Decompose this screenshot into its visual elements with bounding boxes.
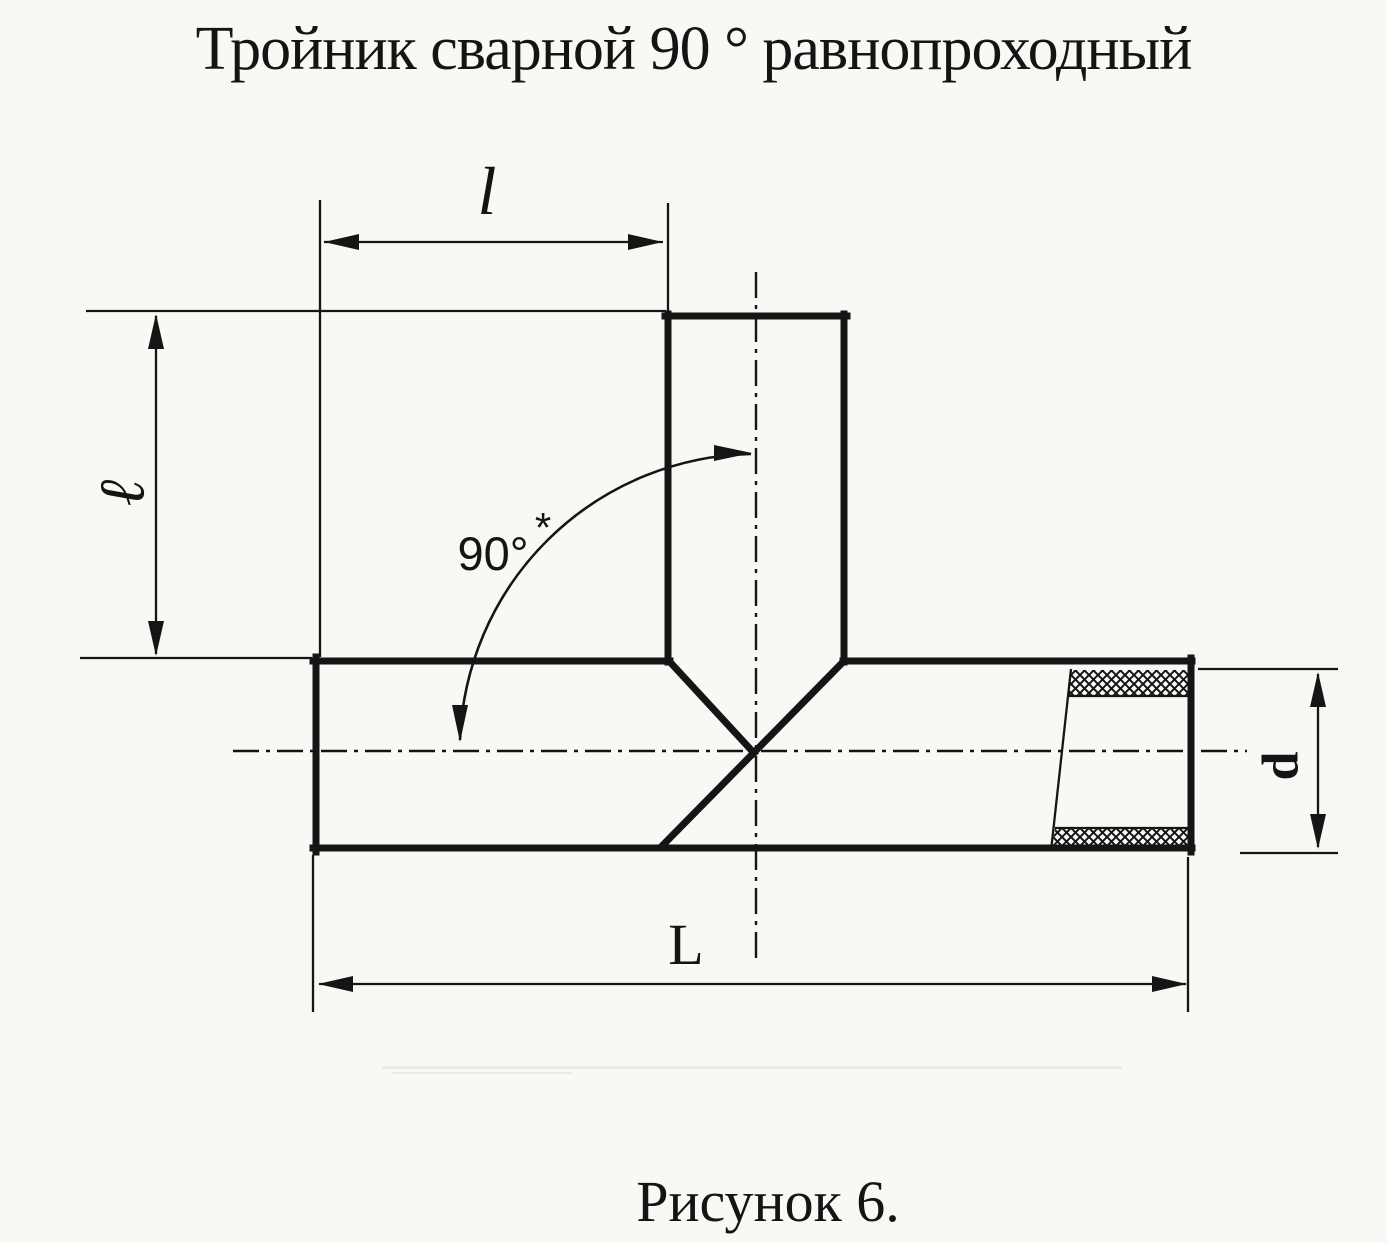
wall-hatch-top <box>1068 670 1190 695</box>
weld-chamfer-left <box>669 661 754 753</box>
arrowhead-arc-top <box>714 445 752 461</box>
scan-artifact-streak-2 <box>392 1072 572 1074</box>
arrowhead-L-right <box>1152 976 1187 992</box>
weld-seam-diagonal <box>662 662 843 846</box>
arrowhead-L-left <box>318 976 353 992</box>
angle-label: 90° <box>457 527 528 580</box>
arrowhead-d-top <box>1310 672 1326 707</box>
figure-caption: Рисунок 6. <box>636 1168 900 1235</box>
dimension-label-height: ℓ <box>87 479 158 506</box>
arrowhead-height-bottom <box>148 621 164 656</box>
arrowhead-l-right <box>628 234 663 250</box>
dimension-label-L: L <box>668 912 703 977</box>
tee-fitting-drawing: l ℓ L d 90° * <box>0 0 1387 1242</box>
arrowhead-d-bottom <box>1310 814 1326 849</box>
scanned-drawing-page: Тройник сварной 90 ° равнопроходный <box>0 0 1387 1242</box>
angle-arc <box>460 454 751 740</box>
arrowhead-l-left <box>324 234 359 250</box>
dimension-label-d: d <box>1253 751 1310 780</box>
scan-artifact-streak <box>382 1066 1122 1069</box>
arrowhead-height-top <box>148 314 164 349</box>
arrowhead-arc-bottom <box>452 705 468 742</box>
angle-note-asterisk: * <box>535 504 551 551</box>
dimension-label-l: l <box>478 153 497 229</box>
